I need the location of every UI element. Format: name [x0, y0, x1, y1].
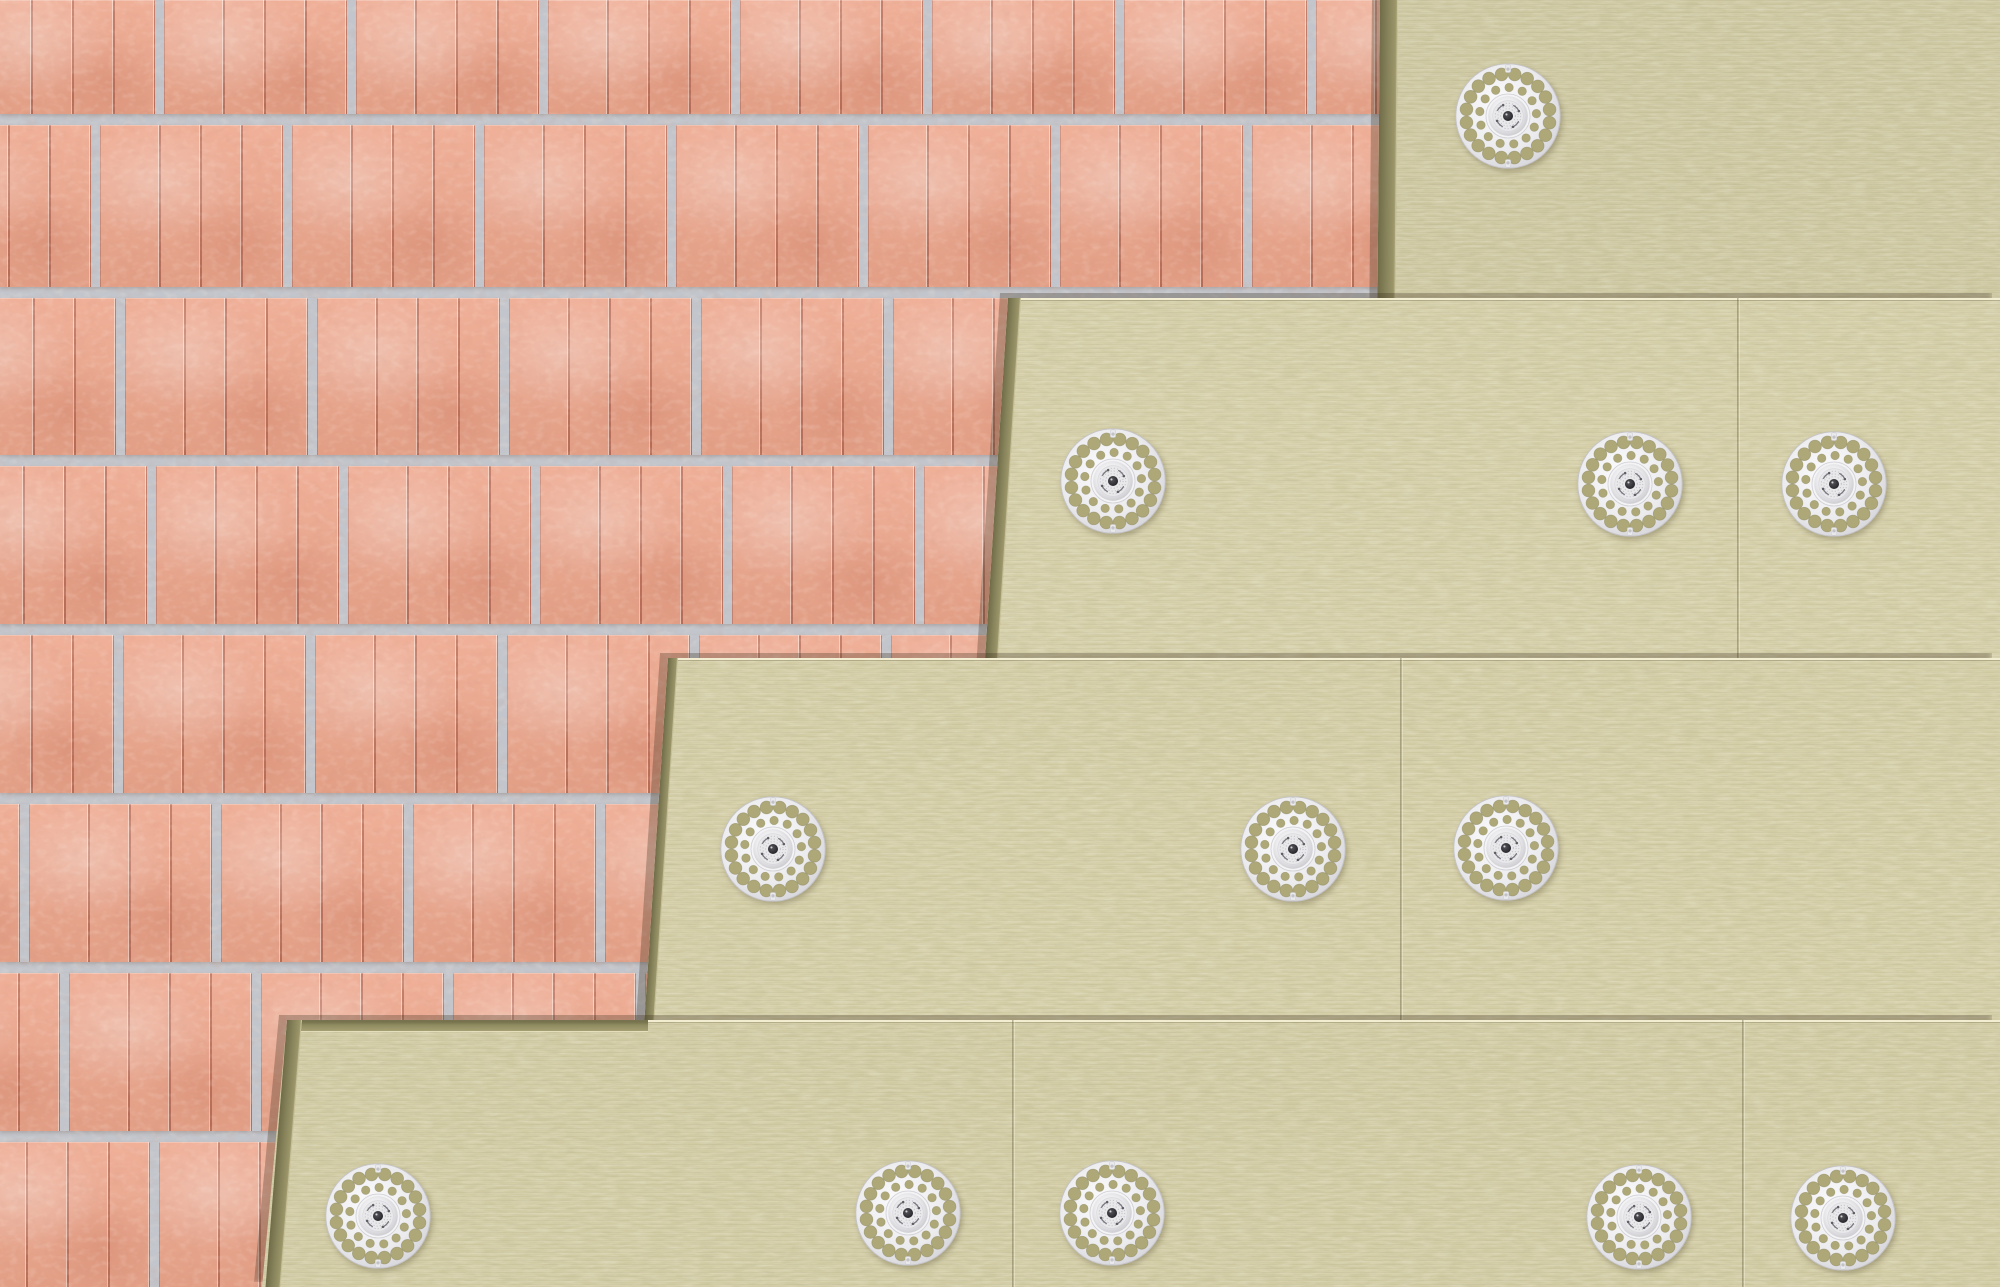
insulation-anchor — [1776, 426, 1892, 542]
brick-block — [509, 298, 692, 455]
board-seam — [1742, 1020, 1745, 1287]
anchor-washer-icon — [1055, 423, 1171, 539]
brick-block — [348, 466, 531, 624]
insulation-anchor — [1450, 58, 1566, 174]
anchor-washer-icon — [1581, 1159, 1697, 1275]
anchor-washer-icon — [1235, 791, 1351, 907]
brick-block — [221, 804, 404, 962]
brick-block — [701, 298, 884, 455]
brick-block — [932, 0, 1115, 114]
insulation-anchor — [1581, 1159, 1697, 1275]
brick-block — [0, 125, 91, 287]
brick-block — [868, 125, 1051, 287]
anchor-washer-icon — [320, 1158, 436, 1274]
brick-block — [123, 635, 306, 793]
anchor-washer-icon — [1450, 58, 1566, 174]
brick-block — [676, 125, 859, 287]
anchor-washer-icon — [1448, 790, 1564, 906]
brick-block — [732, 466, 915, 624]
brick-block — [0, 635, 114, 793]
insulation-anchor — [320, 1158, 436, 1274]
anchor-washer-icon — [850, 1155, 966, 1271]
brick-block — [0, 804, 20, 962]
brick-block — [740, 0, 923, 114]
brick-block — [29, 804, 212, 962]
brick-block — [0, 973, 60, 1131]
cut-edge-highlight — [1008, 298, 2000, 303]
anchor-washer-icon — [1785, 1160, 1901, 1276]
cut-edge-top — [287, 1020, 648, 1031]
insulation-anchor — [1055, 423, 1171, 539]
anchor-washer-icon — [1776, 426, 1892, 542]
anchor-washer-icon — [1572, 426, 1688, 542]
brick-block — [317, 298, 500, 455]
anchor-washer-icon — [715, 791, 831, 907]
insulation-anchor — [1448, 790, 1564, 906]
brick-block — [69, 973, 252, 1131]
brick-block — [1060, 125, 1243, 287]
brick-block — [356, 0, 539, 114]
insulation-anchor — [1572, 426, 1688, 542]
brick-block — [0, 298, 116, 455]
insulation-anchor — [1054, 1155, 1170, 1271]
brick-block — [484, 125, 667, 287]
insulation-anchor — [850, 1155, 966, 1271]
anchor-washer-icon — [1054, 1155, 1170, 1271]
brick-block — [164, 0, 347, 114]
brick-block — [0, 466, 147, 624]
brick-block — [540, 466, 723, 624]
scene — [0, 0, 2000, 1287]
brick-block — [156, 466, 339, 624]
brick-block — [1124, 0, 1307, 114]
brick-block — [0, 0, 155, 114]
cut-edge-highlight — [668, 658, 2000, 663]
brick-block — [125, 298, 308, 455]
cut-edge-highlight — [648, 1020, 2000, 1025]
brick-block — [100, 125, 283, 287]
brick-block — [548, 0, 731, 114]
insulation-anchor — [1785, 1160, 1901, 1276]
brick-block — [0, 1142, 150, 1287]
brick-block — [315, 635, 498, 793]
insulation-anchor — [1235, 791, 1351, 907]
brick-block — [292, 125, 475, 287]
insulation-anchor — [715, 791, 831, 907]
brick-block — [413, 804, 596, 962]
board-seam — [1012, 1020, 1015, 1287]
